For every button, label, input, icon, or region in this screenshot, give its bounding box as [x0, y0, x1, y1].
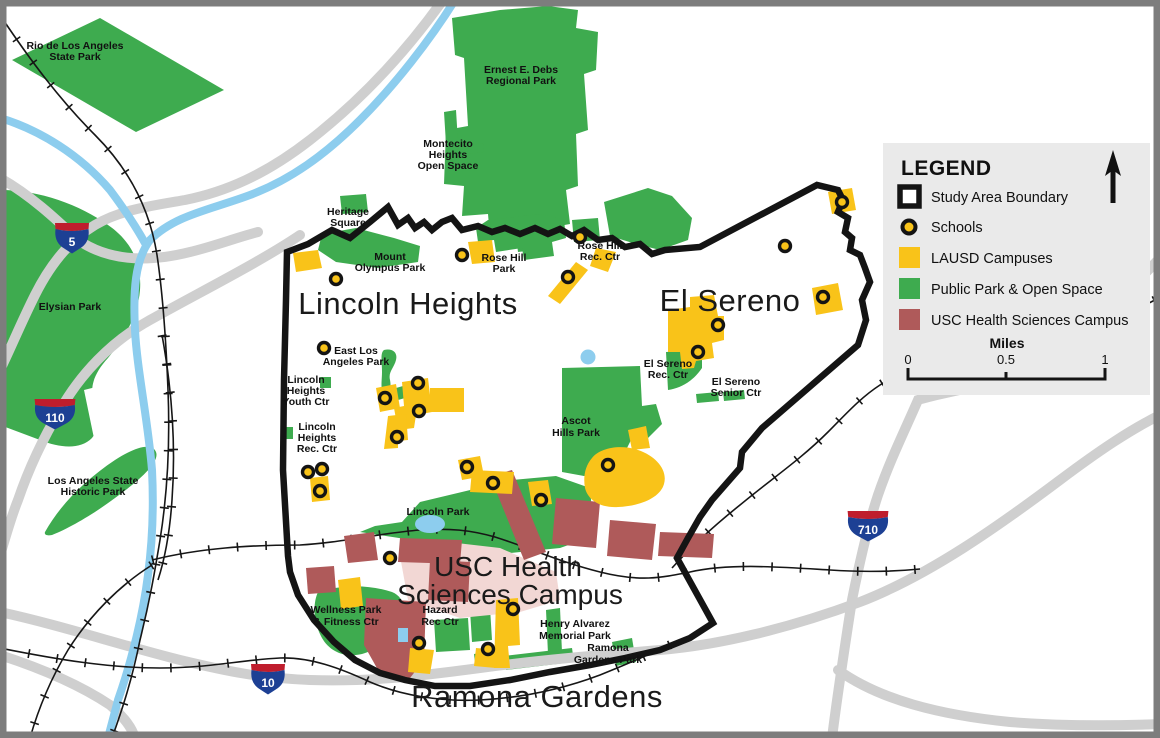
school-dot	[536, 495, 547, 506]
el-sereno-rec-label: El SerenoRec. Ctr	[644, 358, 692, 381]
usc-building	[344, 532, 378, 563]
el-sereno-label: El Sereno	[660, 283, 801, 318]
school-dot	[837, 197, 848, 208]
usc-building	[607, 520, 656, 560]
hazard-pool	[398, 628, 408, 642]
i710-shield-top	[848, 511, 889, 519]
school-dot	[303, 467, 314, 478]
school-dot	[713, 320, 724, 331]
school-dot	[575, 232, 586, 243]
lausd-campus	[408, 648, 434, 674]
elysian-park-label: Elysian Park	[39, 301, 102, 313]
school-dot	[317, 464, 328, 475]
usc-building	[306, 566, 336, 594]
rose-hill-rec-label: Rose HillRec. Ctr	[578, 240, 623, 263]
i10-shield-top	[251, 664, 285, 672]
ascot-pond	[581, 350, 596, 365]
legend-swatch-lausd	[899, 247, 920, 268]
school-dot	[457, 250, 468, 261]
legend-title: LEGEND	[901, 157, 992, 180]
legend-label-usc: USC Health Sciences Campus	[931, 313, 1128, 329]
map-canvas: Rio de Los AngelesState Park Elysian Par…	[0, 0, 1160, 738]
school-dot	[488, 478, 499, 489]
legend-label-schools: Schools	[931, 220, 983, 236]
legend-label-boundary: Study Area Boundary	[931, 190, 1069, 206]
legend-swatch-school	[903, 221, 916, 234]
school-dot	[315, 486, 326, 497]
school-dot	[414, 638, 425, 649]
i10-shield-number: 10	[261, 676, 275, 690]
lh-youth-ctr-label: LincolnHeightsYouth Ctr	[282, 374, 329, 408]
legend-scale-title: Miles	[989, 335, 1024, 351]
ramona-gardens-label: Ramona Gardens	[411, 679, 663, 714]
lincoln-heights-label: Lincoln Heights	[298, 286, 517, 321]
lausd-campus	[430, 388, 464, 412]
legend-swatch-usc	[899, 309, 920, 330]
school-dot	[414, 406, 425, 417]
lh-rec-ctr-label: LincolnHeightsRec. Ctr	[297, 421, 337, 455]
i5-shield-top	[55, 223, 89, 231]
i5-shield-number: 5	[69, 235, 76, 249]
wellness-park-label: Wellness Park& Fitness Ctr	[310, 604, 381, 628]
school-dot	[563, 272, 574, 283]
lincoln-park-label: Lincoln Park	[406, 506, 469, 518]
school-dot	[380, 393, 391, 404]
school-dot	[385, 553, 396, 564]
legend-swatch-boundary	[900, 187, 919, 206]
legend-scale-05: 0.5	[997, 352, 1015, 367]
study-area-map: Rio de Los AngelesState Park Elysian Par…	[0, 0, 1160, 738]
usc-label-line2: Sciences Campus	[397, 579, 623, 610]
school-dot	[483, 644, 494, 655]
i710-shield-number: 710	[858, 523, 878, 537]
la-historic-park-label: Los Angeles StateHistoric Park	[48, 475, 139, 498]
school-dot	[319, 343, 330, 354]
legend-box	[883, 143, 1150, 395]
i110-shield-top	[35, 399, 76, 407]
legend-swatch-park	[899, 278, 920, 299]
school-dot	[818, 292, 829, 303]
school-dot	[331, 274, 342, 285]
legend: LEGEND Study Area Boundary Schools LAUSD…	[883, 143, 1150, 395]
legend-scale-0: 0	[904, 352, 911, 367]
school-dot	[693, 347, 704, 358]
debs-park-label: Ernest E. DebsRegional Park	[484, 64, 558, 87]
school-dot	[413, 378, 424, 389]
school-dot	[462, 462, 473, 473]
usc-building	[552, 498, 600, 548]
school-dot	[603, 460, 614, 471]
i110-shield-number: 110	[45, 411, 65, 425]
henry-alvarez-label: Henry AlvarezMemorial Park	[539, 618, 611, 642]
school-dot	[780, 241, 791, 252]
legend-label-lausd: LAUSD Campuses	[931, 251, 1053, 267]
heritage-square-label: HeritageSquare	[327, 206, 369, 229]
el-sereno-senior-label: El SerenoSenior Ctr	[711, 376, 762, 399]
legend-scale-1: 1	[1101, 352, 1108, 367]
usc-label-line1: USC Health	[434, 551, 582, 582]
legend-label-park: Public Park & Open Space	[931, 282, 1103, 298]
school-dot	[392, 432, 403, 443]
